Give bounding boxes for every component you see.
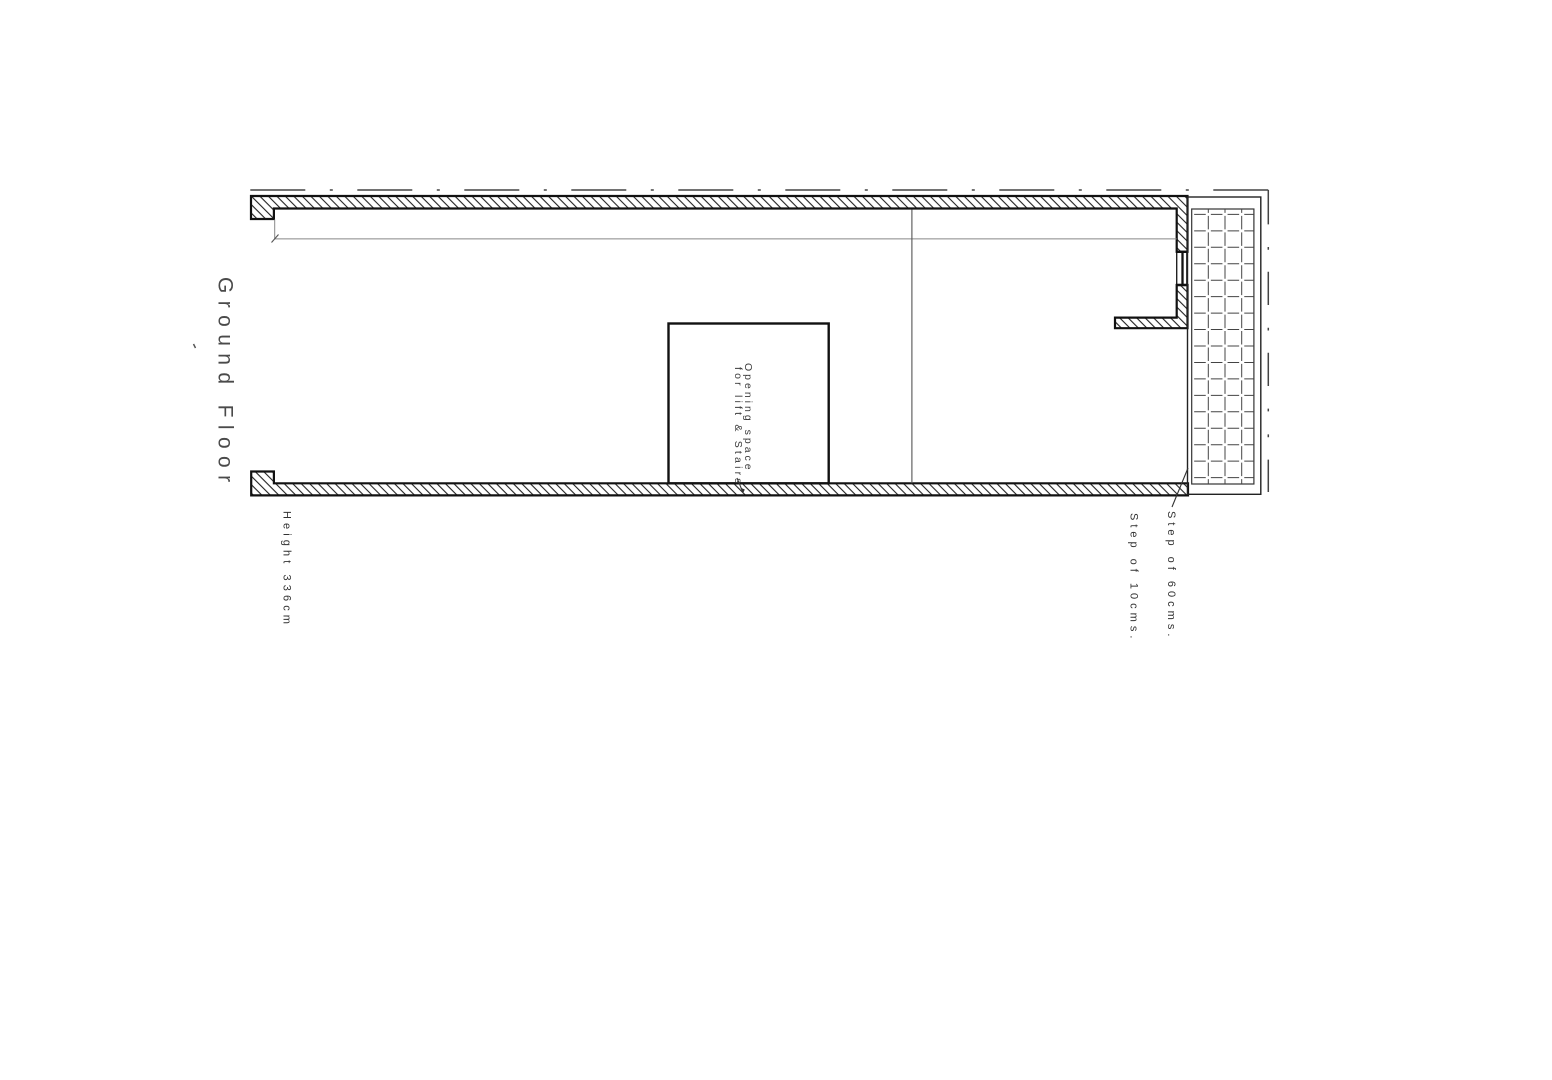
svg-text:Step of 60cms.: Step of 60cms. [1165, 511, 1177, 640]
svg-text:for lift & Stairs: for lift & Stairs [732, 367, 744, 487]
svg-text:Height 336cm: Height 336cm [281, 511, 293, 628]
svg-text:Ground Floor: Ground Floor [214, 277, 237, 490]
svg-text:Step of 10cms.: Step of 10cms. [1128, 513, 1140, 642]
